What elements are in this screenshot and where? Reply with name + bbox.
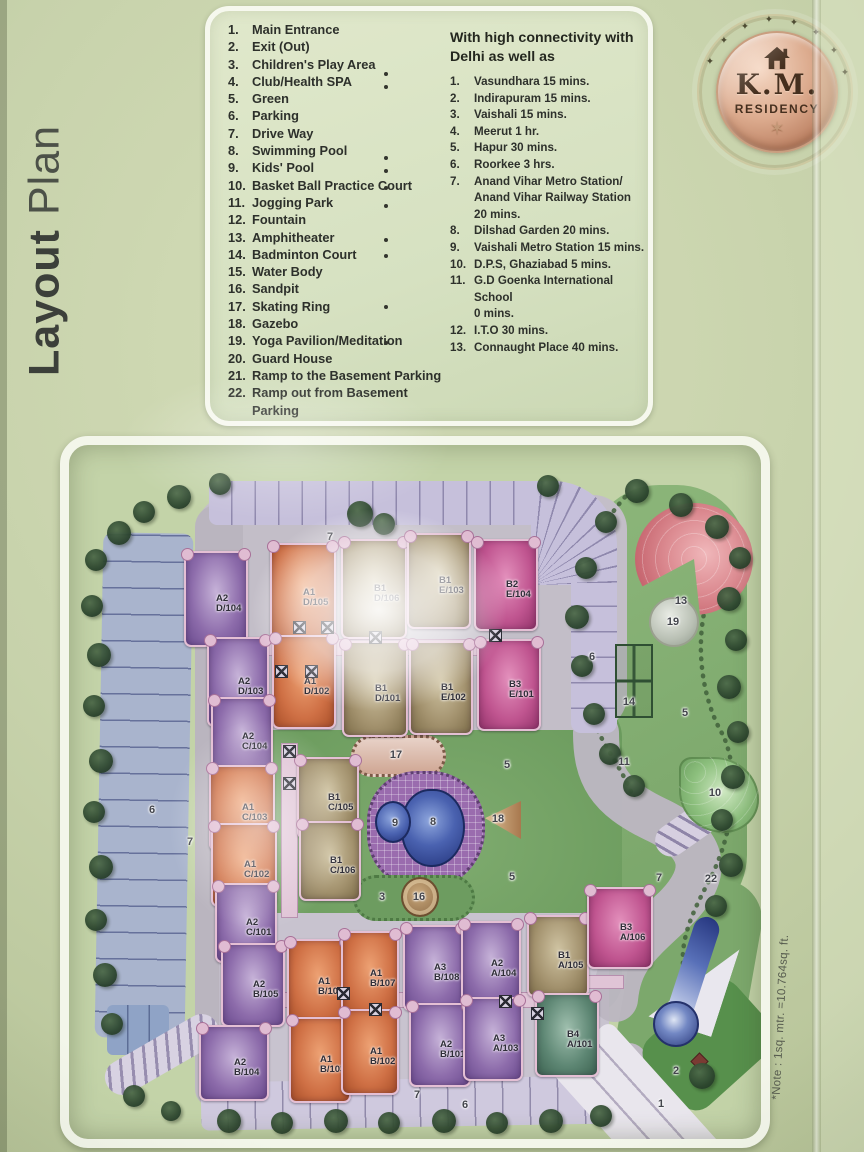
logo-ring-star-icon: ✦: [790, 18, 798, 29]
page-right-strip: [821, 0, 864, 1152]
tree-icon: [101, 1013, 123, 1035]
tree-icon: [705, 515, 729, 539]
tree-icon: [217, 1109, 241, 1133]
tree-icon: [89, 855, 113, 879]
connectivity-panel: With high connectivity with Delhi as wel…: [450, 29, 654, 356]
map-marker-14: 14: [623, 696, 635, 708]
corridor-middle: [281, 743, 298, 918]
tree-icon: [167, 485, 191, 509]
tree-icon: [719, 853, 743, 877]
lift-box: [337, 987, 350, 1000]
parking-band-left: [95, 532, 194, 1038]
tree-icon: [347, 501, 373, 527]
tree-icon: [123, 1085, 145, 1107]
legend-item-5: 5.Green: [228, 90, 448, 107]
tree-icon: [85, 549, 107, 571]
tree-icon: [133, 501, 155, 523]
tree-icon: [575, 557, 597, 579]
legend-item-4: 4.Club/Health SPA: [228, 73, 448, 90]
legend-item-20: 20.Guard House: [228, 350, 448, 367]
tree-icon: [590, 1105, 612, 1127]
tree-icon: [378, 1112, 400, 1134]
legend-item-17: 17.Skating Ring: [228, 298, 448, 315]
map-marker-5: 5: [682, 707, 688, 719]
legend-item-13: 13.Amphitheater: [228, 229, 448, 246]
tree-icon: [725, 629, 747, 651]
connectivity-item-12: 12.I.T.O 30 mins.: [450, 323, 654, 340]
map-marker-8: 8: [430, 816, 436, 828]
note: *Note : 1sq. mtr. =10.764sq. ft.: [767, 850, 804, 1101]
logo-name: K.M.: [736, 71, 819, 99]
tree-icon: [93, 963, 117, 987]
building-B1-D-106: B1D/106: [341, 539, 407, 639]
legend-list: 1.Main Entrance2.Exit (Out)3.Children's …: [228, 21, 448, 419]
legend-item-15: 15.Water Body: [228, 263, 448, 280]
tree-icon: [539, 1109, 563, 1133]
title-plan: Plan: [21, 125, 70, 215]
logo-subtitle: RESIDENCY: [735, 102, 819, 116]
page-title: Layout Plan: [12, 66, 78, 376]
legend-item-6: 6.Parking: [228, 107, 448, 124]
map-marker-7: 7: [327, 531, 333, 543]
lift-box: [275, 665, 288, 678]
legend-item-3: 3.Children's Play Area: [228, 56, 448, 73]
page-left-edge: [0, 0, 7, 1152]
lift-box: [283, 745, 296, 758]
legend-dot: [384, 72, 388, 76]
tree-icon: [209, 473, 231, 495]
building-A2-B-105: A2B/105: [221, 943, 285, 1027]
tree-icon: [324, 1109, 348, 1133]
logo-ring-star-icon: ✦: [765, 15, 773, 26]
legend-item-8: 8.Swimming Pool: [228, 142, 448, 159]
building-B1-C-106: B1C/106: [299, 821, 361, 901]
map-marker-7: 7: [187, 836, 193, 848]
legend-dot: [384, 341, 388, 345]
building-A2-B-104: A2B/104: [199, 1025, 269, 1101]
lift-box: [321, 621, 334, 634]
tree-icon: [537, 475, 559, 497]
tree-icon: [85, 909, 107, 931]
building-B2-E-104: B2E/104: [474, 539, 538, 631]
tree-icon: [717, 675, 741, 699]
map-marker-6: 6: [149, 804, 155, 816]
connectivity-item-13: 13.Connaught Place 40 mins.: [450, 340, 654, 357]
building-B1-D-101: B1D/101: [342, 641, 408, 737]
logo-ring-star-icon: ✦: [741, 22, 749, 33]
title-layout: Layout: [21, 229, 70, 376]
page-fold: [812, 0, 821, 1152]
legend-item-2: 2.Exit (Out): [228, 38, 448, 55]
map-marker-7: 7: [656, 872, 662, 884]
tree-icon: [81, 595, 103, 617]
map-marker-5: 5: [504, 759, 510, 771]
layout-map-panel: A2D/104A1D/105B1D/106B1E/103B2E/104A2D/1…: [60, 436, 770, 1148]
lift-box: [369, 631, 382, 644]
legend-item-14: 14.Badminton Court: [228, 246, 448, 263]
parking-band-top: [209, 481, 537, 525]
tree-icon: [87, 643, 111, 667]
tree-icon: [727, 721, 749, 743]
lift-box: [531, 1007, 544, 1020]
map-marker-3: 3: [379, 891, 385, 903]
connectivity-item-6: 6.Roorkee 3 hrs.: [450, 157, 654, 174]
connectivity-item-11: 11.G.D Goenka International School 0 min…: [450, 273, 654, 323]
building-B3-A-106: B3A/106: [587, 887, 653, 969]
legend-item-21: 21.Ramp to the Basement Parking: [228, 367, 448, 384]
legend-item-7: 7.Drive Way: [228, 125, 448, 142]
building-A3-B-108: A3B/108: [403, 925, 465, 1011]
tree-icon: [83, 695, 105, 717]
connectivity-item-8: 8.Dilshad Garden 20 mins.: [450, 223, 654, 240]
legend-item-22: 22.Ramp out from Basement Parking: [228, 384, 448, 419]
logo-ring-star-icon: ✦: [706, 57, 714, 68]
legend-dot: [384, 169, 388, 173]
building-B1-E-103: B1E/103: [407, 533, 471, 629]
connectivity-item-1: 1.Vasundhara 15 mins.: [450, 74, 654, 91]
lift-box: [489, 629, 502, 642]
legend-item-12: 12.Fountain: [228, 211, 448, 228]
lift-box: [305, 665, 318, 678]
brochure-page: Layout Plan 1.Main Entrance2.Exit (Out)3…: [0, 0, 864, 1152]
connectivity-item-7: 7.Anand Vihar Metro Station/ Anand Vihar…: [450, 174, 654, 224]
legend-dot: [384, 305, 388, 309]
building-A1-D-102: A1D/102: [272, 635, 336, 729]
legend-dot: [384, 238, 388, 242]
legend-card: 1.Main Entrance2.Exit (Out)3.Children's …: [205, 6, 653, 426]
house-icon: [762, 46, 792, 70]
building-A3-A-103: A3A/103: [463, 997, 523, 1081]
legend-item-16: 16.Sandpit: [228, 280, 448, 297]
tree-icon: [721, 765, 745, 789]
map-marker-2: 2: [673, 1065, 679, 1077]
legend-item-11: 11.Jogging Park: [228, 194, 448, 211]
legend-dot: [384, 186, 388, 190]
tree-icon: [161, 1101, 181, 1121]
lift-box: [293, 621, 306, 634]
legend-dot: [384, 156, 388, 160]
map-marker-13: 13: [675, 595, 687, 607]
connectivity-list: 1.Vasundhara 15 mins.2.Indirapuram 15 mi…: [450, 74, 654, 356]
connectivity-item-5: 5.Hapur 30 mins.: [450, 140, 654, 157]
tree-icon: [432, 1109, 456, 1133]
building-B1-A-105: B1A/105: [527, 915, 589, 997]
building-A2-D-104: A2D/104: [184, 551, 248, 647]
legend-dot: [384, 85, 388, 89]
map-marker-10: 10: [709, 787, 721, 799]
tree-icon: [565, 605, 589, 629]
map-marker-11: 11: [618, 756, 630, 768]
map-marker-19: 19: [667, 616, 679, 628]
tree-icon: [625, 479, 649, 503]
fountain-pool: [653, 1001, 699, 1047]
tree-icon: [486, 1112, 508, 1134]
connectivity-item-10: 10.D.P.S, Ghaziabad 5 mins.: [450, 257, 654, 274]
tree-icon: [689, 1063, 715, 1089]
tree-icon: [669, 493, 693, 517]
map-marker-17: 17: [390, 749, 402, 761]
tree-icon: [623, 775, 645, 797]
map-marker-16: 16: [413, 891, 425, 903]
building-A1-B-102: A1B/102: [341, 1009, 399, 1095]
legend-item-1: 1.Main Entrance: [228, 21, 448, 38]
tree-icon: [705, 895, 727, 917]
legend-item-19: 19.Yoga Pavilion/Meditation: [228, 332, 448, 349]
map-marker-7: 7: [414, 1089, 420, 1101]
building-B1-E-102: B1E/102: [409, 641, 473, 735]
building-A2-B-101: A2B/101: [409, 1003, 471, 1087]
connectivity-item-3: 3.Vaishali 15 mins.: [450, 107, 654, 124]
connectivity-item-9: 9.Vaishali Metro Station 15 mins.: [450, 240, 654, 257]
lift-box: [499, 995, 512, 1008]
note-text: *Note : 1sq. mtr. =10.764sq. ft.: [770, 934, 791, 1100]
map-marker-18: 18: [492, 813, 504, 825]
tree-icon: [89, 749, 113, 773]
map-marker-5: 5: [509, 871, 515, 883]
map-marker-6: 6: [462, 1099, 468, 1111]
map-marker-9: 9: [392, 817, 398, 829]
building-B4-A-101: B4A/101: [535, 993, 599, 1077]
legend-dot: [384, 254, 388, 258]
tree-icon: [595, 511, 617, 533]
tree-icon: [83, 801, 105, 823]
connectivity-item-2: 2.Indirapuram 15 mins.: [450, 91, 654, 108]
legend-item-10: 10.Basket Ball Practice Court: [228, 177, 448, 194]
connectivity-heading: With high connectivity with Delhi as wel…: [450, 29, 654, 67]
building-B3-E-101: B3E/101: [477, 639, 541, 731]
tree-icon: [271, 1112, 293, 1134]
legend-item-9: 9.Kids' Pool: [228, 159, 448, 176]
map-marker-22: 22: [705, 873, 717, 885]
tree-icon: [717, 587, 741, 611]
legend-dot: [384, 204, 388, 208]
tree-icon: [107, 521, 131, 545]
tree-icon: [583, 703, 605, 725]
tree-icon: [373, 513, 395, 535]
lift-box: [283, 777, 296, 790]
legend-item-18: 18.Gazebo: [228, 315, 448, 332]
lift-box: [369, 1003, 382, 1016]
tree-icon: [711, 809, 733, 831]
map-marker-6: 6: [589, 651, 595, 663]
map-marker-1: 1: [658, 1098, 664, 1110]
connectivity-item-4: 4.Meerut 1 hr.: [450, 124, 654, 141]
logo-ring-star-icon: ✦: [720, 36, 728, 47]
tree-icon: [729, 547, 751, 569]
logo-star-icon: ✶: [769, 118, 784, 139]
